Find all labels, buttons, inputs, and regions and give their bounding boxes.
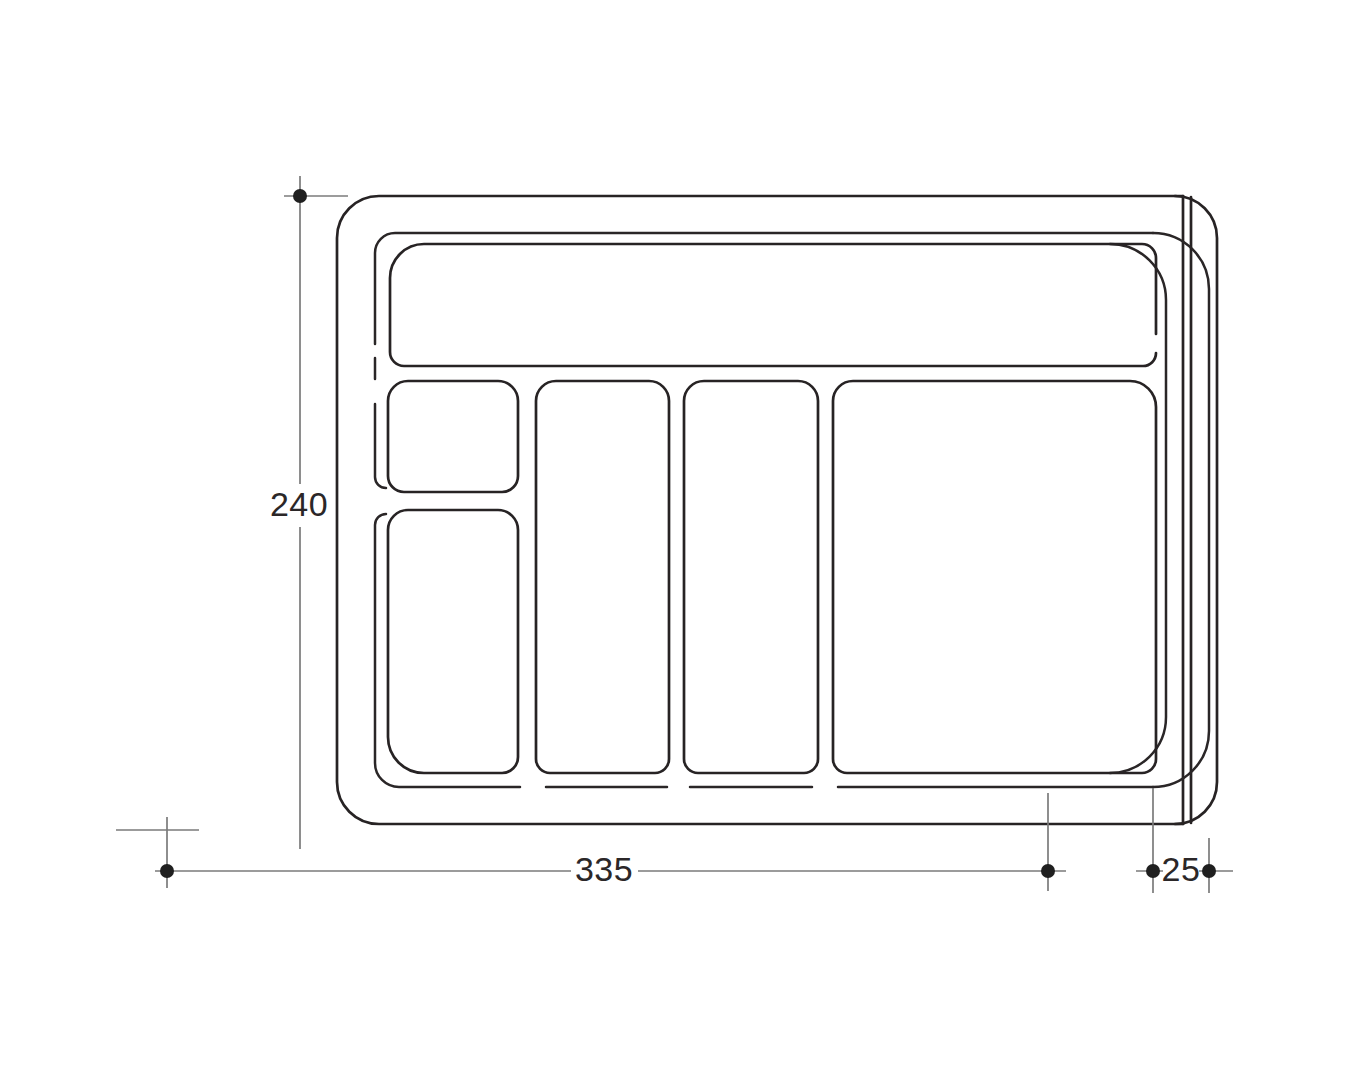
compartment-small-left — [388, 381, 518, 492]
marker-dot-trim-right — [1202, 864, 1216, 878]
compartment-middle-1 — [536, 381, 669, 773]
marker-dot-trim-left — [1146, 864, 1160, 878]
technical-drawing-page: 240 335 25 — [0, 0, 1348, 1080]
compartment-middle-2 — [684, 381, 818, 773]
marker-dot-bottom-left — [160, 864, 174, 878]
compartment-top-long — [390, 244, 1156, 366]
dimension-markers-group — [160, 189, 1216, 878]
datum-crosshair-bottom-left — [116, 817, 199, 888]
trim-strip-outer-edge — [1175, 196, 1217, 824]
compartment-left-tall — [388, 510, 518, 773]
dimension-label-trim: 25 — [1162, 850, 1201, 888]
dimension-label-width: 335 — [575, 850, 633, 888]
drawer-insert-drawing: 240 335 25 — [0, 0, 1348, 1080]
marker-dot-top-left — [293, 189, 307, 203]
trim-groove-line — [1110, 244, 1166, 773]
compartment-large-right — [833, 381, 1156, 773]
rim-right-uncut-edge — [1153, 233, 1209, 787]
dimension-labels-group: 240 335 25 — [270, 485, 1201, 888]
rim-left-segment-3 — [375, 514, 520, 787]
compartments-group — [388, 244, 1156, 773]
rim-left-segment-2 — [375, 404, 386, 488]
dimension-label-height: 240 — [270, 485, 328, 523]
dimension-lines-group — [116, 176, 1233, 893]
rim-top-edge — [375, 233, 1153, 344]
marker-dot-width-end — [1041, 864, 1055, 878]
